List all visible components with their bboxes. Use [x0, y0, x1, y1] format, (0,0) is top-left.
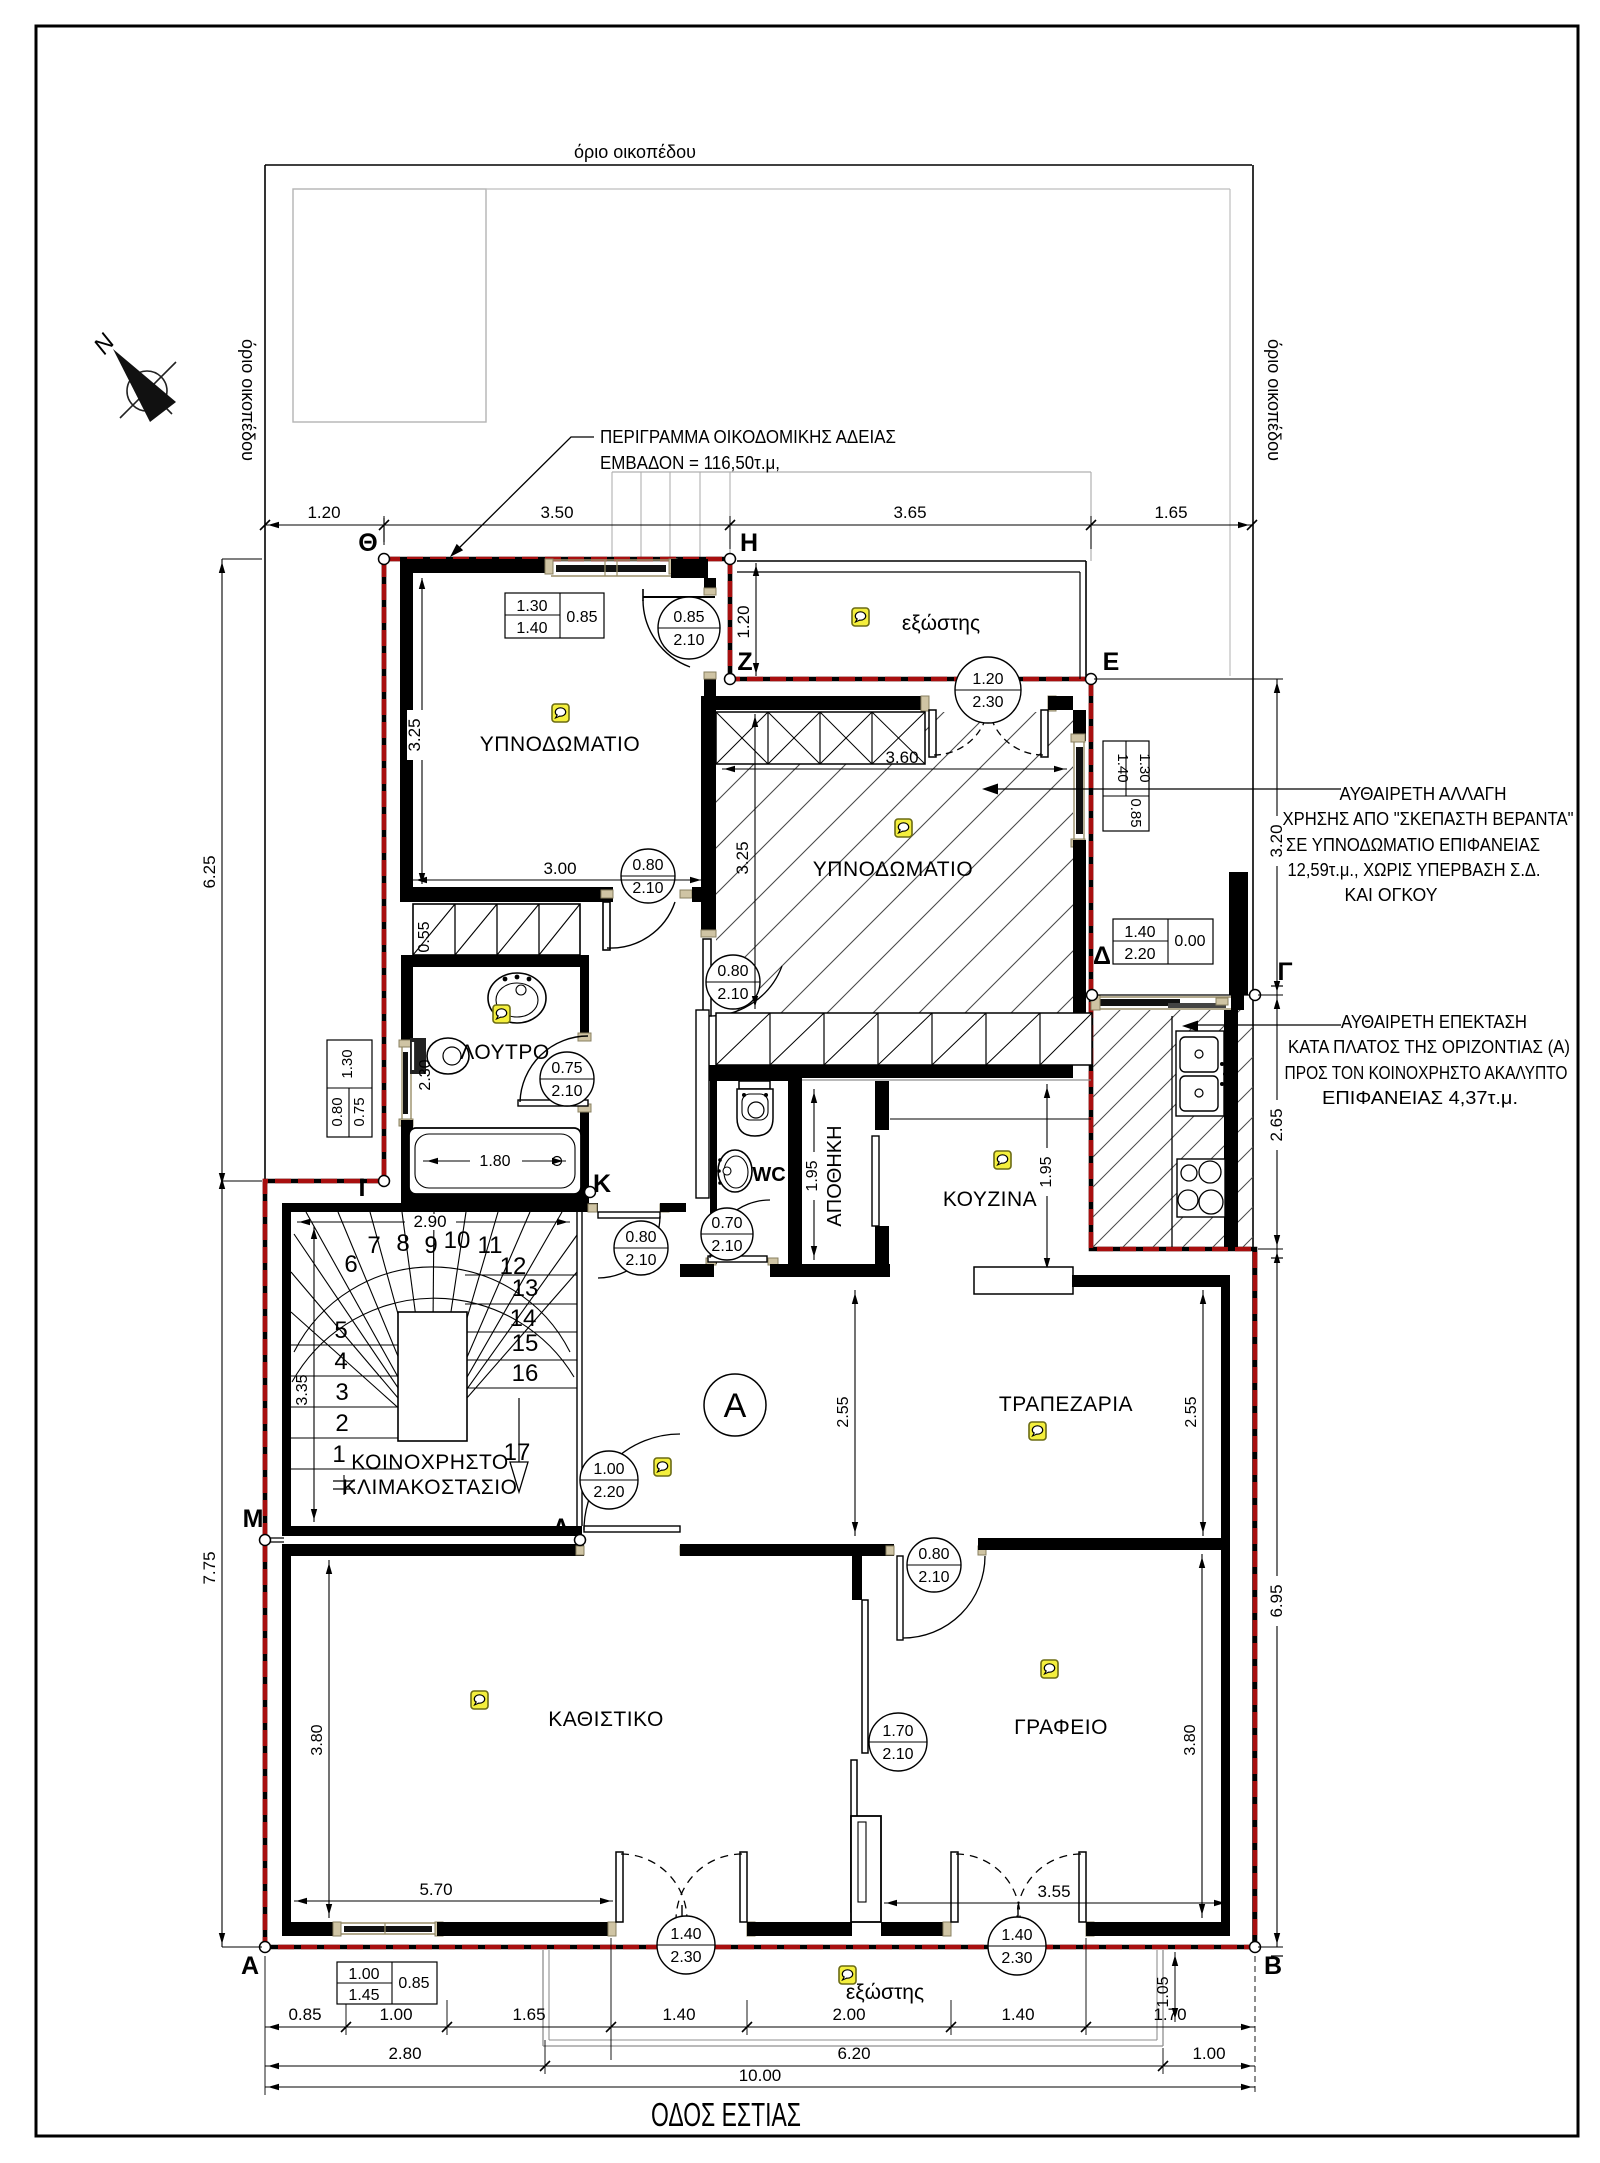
- svg-text:Δ: Δ: [1093, 942, 1111, 970]
- svg-text:2.55: 2.55: [835, 1396, 852, 1427]
- svg-text:3.80: 3.80: [1182, 1724, 1199, 1755]
- svg-text:13: 13: [512, 1275, 539, 1302]
- svg-text:3.65: 3.65: [893, 503, 926, 522]
- svg-text:Λ: Λ: [553, 1514, 570, 1542]
- svg-text:ΧΡΗΣΗΣ ΑΠΟ "ΣΚΕΠΑΣΤΗ ΒΕΡΑΝΤΑ": ΧΡΗΣΗΣ ΑΠΟ "ΣΚΕΠΑΣΤΗ ΒΕΡΑΝΤΑ": [1283, 809, 1574, 829]
- svg-text:όριο οικοπέδου: όριο οικοπέδου: [1264, 339, 1284, 461]
- svg-text:A: A: [724, 1387, 747, 1425]
- svg-text:1.95: 1.95: [804, 1160, 821, 1191]
- svg-text:2.80: 2.80: [388, 2044, 421, 2063]
- svg-text:1.00: 1.00: [348, 1966, 379, 1983]
- svg-text:0.80: 0.80: [632, 857, 663, 874]
- svg-text:1.45: 1.45: [348, 1987, 379, 2004]
- svg-text:ΠΕΡΙΓΡΑΜΜΑ ΟΙΚΟΔΟΜΙΚΗΣ ΑΔΕΙΑΣ: ΠΕΡΙΓΡΑΜΜΑ ΟΙΚΟΔΟΜΙΚΗΣ ΑΔΕΙΑΣ: [600, 427, 896, 447]
- svg-text:12,59τ.μ., ΧΩΡΙΣ ΥΠΕΡΒΑΣΗ Σ.Δ.: 12,59τ.μ., ΧΩΡΙΣ ΥΠΕΡΒΑΣΗ Σ.Δ.: [1288, 860, 1541, 880]
- svg-text:6.20: 6.20: [837, 2044, 870, 2063]
- svg-text:2.65: 2.65: [1267, 1108, 1286, 1141]
- svg-text:2.90: 2.90: [413, 1212, 446, 1231]
- svg-text:εξώστης: εξώστης: [902, 612, 980, 635]
- svg-text:ΠΡΟΣ ΤΟΝ ΚΟΙΝΟΧΡΗΣΤΟ ΑΚΑΛΥΠΤΟ: ΠΡΟΣ ΤΟΝ ΚΟΙΝΟΧΡΗΣΤΟ ΑΚΑΛΥΠΤΟ: [1285, 1063, 1568, 1083]
- svg-text:1.00: 1.00: [593, 1461, 624, 1478]
- svg-text:6.25: 6.25: [200, 855, 219, 888]
- svg-text:ΥΠΝΟΔΩΜΑΤΙΟ: ΥΠΝΟΔΩΜΑΤΙΟ: [480, 733, 640, 756]
- svg-text:ΚΟΥΖΙΝΑ: ΚΟΥΖΙΝΑ: [943, 1188, 1037, 1211]
- svg-text:0.85: 0.85: [398, 1975, 429, 1992]
- svg-text:10: 10: [444, 1227, 471, 1254]
- svg-text:0.85: 0.85: [566, 609, 597, 626]
- svg-text:ΑΥΘΑΙΡΕΤΗ ΕΠΕΚΤΑΣΗ: ΑΥΘΑΙΡΕΤΗ ΕΠΕΚΤΑΣΗ: [1341, 1012, 1527, 1032]
- svg-text:2.10: 2.10: [625, 1252, 656, 1269]
- svg-text:15: 15: [512, 1330, 539, 1357]
- svg-text:2.20: 2.20: [593, 1484, 624, 1501]
- svg-text:0.80: 0.80: [717, 963, 748, 980]
- svg-text:2.10: 2.10: [717, 986, 748, 1003]
- svg-text:1.30: 1.30: [516, 598, 547, 615]
- svg-text:0.85: 0.85: [288, 2005, 321, 2024]
- svg-text:1: 1: [332, 1441, 345, 1468]
- svg-text:0.75: 0.75: [351, 1097, 368, 1126]
- svg-text:ΕΠΙΦΑΝΕΙΑΣ 4,37τ.μ.: ΕΠΙΦΑΝΕΙΑΣ 4,37τ.μ.: [1322, 1088, 1518, 1108]
- svg-text:2.10: 2.10: [882, 1746, 913, 1763]
- svg-text:2.10: 2.10: [551, 1083, 582, 1100]
- svg-text:1.40: 1.40: [662, 2005, 695, 2024]
- svg-text:ΚΑΤΑ ΠΛΑΤΟΣ ΤΗΣ ΟΡΙΖΟΝΤΙΑΣ (Α): ΚΑΤΑ ΠΛΑΤΟΣ ΤΗΣ ΟΡΙΖΟΝΤΙΑΣ (Α): [1288, 1037, 1570, 1057]
- svg-text:1.40: 1.40: [1114, 753, 1131, 782]
- svg-text:14: 14: [510, 1305, 537, 1332]
- svg-text:1.05: 1.05: [1155, 1976, 1172, 2007]
- svg-text:E: E: [1103, 648, 1120, 676]
- svg-text:1.65: 1.65: [512, 2005, 545, 2024]
- svg-text:ΚΛΙΜΑΚΟΣΤΑΣΙΟ: ΚΛΙΜΑΚΟΣΤΑΣΙΟ: [343, 1476, 518, 1499]
- svg-text:Z: Z: [737, 648, 752, 676]
- svg-text:3: 3: [335, 1379, 348, 1406]
- svg-text:1.30: 1.30: [1136, 753, 1153, 782]
- svg-text:16: 16: [512, 1360, 539, 1387]
- svg-text:H: H: [740, 529, 758, 557]
- svg-text:2.30: 2.30: [972, 694, 1003, 711]
- svg-text:3.25: 3.25: [405, 718, 424, 751]
- svg-text:2.30: 2.30: [1001, 1950, 1032, 1967]
- svg-text:6.95: 6.95: [1267, 1584, 1286, 1617]
- svg-text:2.10: 2.10: [632, 880, 663, 897]
- svg-text:3.50: 3.50: [540, 503, 573, 522]
- svg-text:0.55: 0.55: [416, 921, 433, 952]
- svg-text:1.80: 1.80: [479, 1153, 510, 1170]
- svg-text:1.20: 1.20: [972, 671, 1003, 688]
- svg-text:1.00: 1.00: [379, 2005, 412, 2024]
- svg-text:1.40: 1.40: [670, 1926, 701, 1943]
- svg-text:ΚΑΘΙΣΤΙΚΟ: ΚΑΘΙΣΤΙΚΟ: [548, 1708, 664, 1731]
- svg-text:1.70: 1.70: [882, 1723, 913, 1740]
- svg-text:2.10: 2.10: [711, 1238, 742, 1255]
- svg-text:10.00: 10.00: [739, 2066, 782, 2085]
- svg-text:ΓΡΑΦΕΙΟ: ΓΡΑΦΕΙΟ: [1014, 1716, 1108, 1739]
- svg-text:3.20: 3.20: [1267, 824, 1286, 857]
- svg-text:ΟΔΟΣ ΕΣΤΙΑΣ: ΟΔΟΣ ΕΣΤΙΑΣ: [651, 2096, 801, 2133]
- svg-text:0.80: 0.80: [625, 1229, 656, 1246]
- svg-text:Θ: Θ: [358, 529, 377, 557]
- svg-text:7.75: 7.75: [200, 1551, 219, 1584]
- svg-text:3.60: 3.60: [885, 748, 918, 767]
- svg-text:ΕΜΒΑΔΟΝ = 116,50τ.μ,: ΕΜΒΑΔΟΝ = 116,50τ.μ,: [600, 453, 780, 473]
- svg-text:ΤΡΑΠΕΖΑΡΙΑ: ΤΡΑΠΕΖΑΡΙΑ: [999, 1393, 1133, 1416]
- svg-text:5: 5: [334, 1317, 347, 1344]
- svg-text:3.00: 3.00: [543, 859, 576, 878]
- svg-text:2.55: 2.55: [1183, 1396, 1200, 1427]
- svg-text:9: 9: [424, 1232, 437, 1259]
- svg-text:2.30: 2.30: [417, 1059, 434, 1090]
- svg-text:WC: WC: [752, 1164, 785, 1186]
- svg-text:1.30: 1.30: [339, 1049, 356, 1078]
- svg-text:7: 7: [367, 1232, 380, 1259]
- svg-text:ΚΟΙΝΟΧΡΗΣΤΟ: ΚΟΙΝΟΧΡΗΣΤΟ: [351, 1451, 508, 1474]
- svg-text:3.55: 3.55: [1037, 1882, 1070, 1901]
- svg-text:ΥΠΝΟΔΩΜΑΤΙΟ: ΥΠΝΟΔΩΜΑΤΙΟ: [813, 858, 973, 881]
- svg-text:1.20: 1.20: [734, 605, 753, 638]
- svg-text:0.80: 0.80: [329, 1097, 346, 1126]
- svg-text:0.80: 0.80: [918, 1546, 949, 1563]
- svg-text:όριο οικοπέδου: όριο οικοπέδου: [238, 339, 258, 461]
- svg-text:0.70: 0.70: [711, 1215, 742, 1232]
- svg-text:4: 4: [334, 1348, 347, 1375]
- svg-text:1.95: 1.95: [1038, 1156, 1055, 1187]
- svg-text:ΑΠΟΘΗΚΗ: ΑΠΟΘΗΚΗ: [824, 1125, 846, 1226]
- svg-text:8: 8: [396, 1230, 409, 1257]
- svg-text:0.00: 0.00: [1174, 933, 1205, 950]
- svg-text:2.10: 2.10: [673, 632, 704, 649]
- svg-text:2.00: 2.00: [832, 2005, 865, 2024]
- svg-text:όριο οικοπέδου: όριο οικοπέδου: [574, 142, 696, 162]
- svg-text:ΛΟΥΤΡΟ: ΛΟΥΤΡΟ: [460, 1041, 549, 1064]
- svg-text:εξώστης: εξώστης: [846, 1981, 924, 2004]
- svg-text:ΑΥΘΑΙΡΕΤΗ ΑΛΛΑΓΗ: ΑΥΘΑΙΡΕΤΗ ΑΛΛΑΓΗ: [1340, 784, 1507, 804]
- svg-text:1.40: 1.40: [1001, 2005, 1034, 2024]
- svg-text:3.35: 3.35: [294, 1374, 311, 1405]
- svg-text:1.20: 1.20: [307, 503, 340, 522]
- svg-text:1.40: 1.40: [516, 620, 547, 637]
- svg-text:2: 2: [335, 1410, 348, 1437]
- svg-text:6: 6: [344, 1251, 357, 1278]
- svg-text:1.65: 1.65: [1154, 503, 1187, 522]
- svg-text:1.40: 1.40: [1124, 924, 1155, 941]
- svg-text:M: M: [243, 1505, 264, 1533]
- svg-text:A: A: [241, 1952, 259, 1980]
- svg-text:2.10: 2.10: [918, 1569, 949, 1586]
- svg-text:K: K: [593, 1170, 611, 1198]
- svg-text:ΣΕ ΥΠΝΟΔΩΜΑΤΙΟ ΕΠΙΦΑΝΕΙΑΣ: ΣΕ ΥΠΝΟΔΩΜΑΤΙΟ ΕΠΙΦΑΝΕΙΑΣ: [1286, 835, 1540, 855]
- svg-text:3.25: 3.25: [733, 841, 752, 874]
- svg-text:ΚΑΙ ΟΓΚΟΥ: ΚΑΙ ΟΓΚΟΥ: [1345, 885, 1438, 905]
- svg-text:2.20: 2.20: [1124, 946, 1155, 963]
- svg-text:3.80: 3.80: [309, 1724, 326, 1755]
- svg-text:2.30: 2.30: [670, 1949, 701, 1966]
- svg-text:0.85: 0.85: [1127, 798, 1144, 827]
- svg-text:1.00: 1.00: [1192, 2044, 1225, 2063]
- svg-text:0.75: 0.75: [551, 1060, 582, 1077]
- svg-text:5.70: 5.70: [419, 1880, 452, 1899]
- svg-text:0.85: 0.85: [673, 609, 704, 626]
- svg-text:I: I: [359, 1174, 366, 1202]
- svg-text:1.40: 1.40: [1001, 1927, 1032, 1944]
